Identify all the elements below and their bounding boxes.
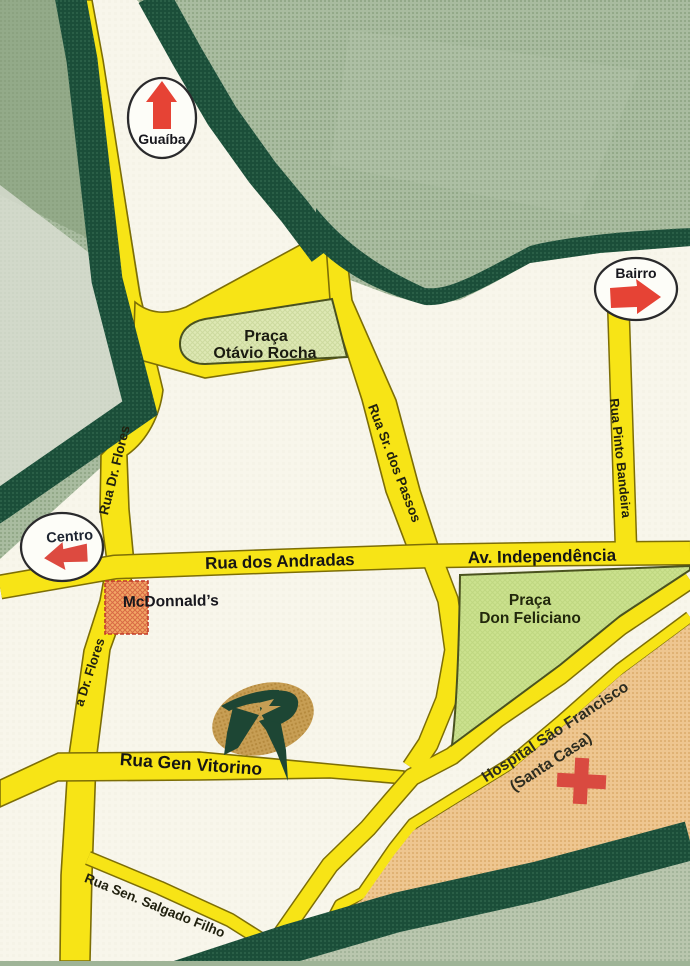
svg-text:Rua dos Andradas: Rua dos Andradas: [205, 550, 355, 573]
svg-text:Bairro: Bairro: [615, 265, 656, 281]
svg-text:Guaíba: Guaíba: [138, 131, 186, 147]
svg-text:McDonnald’s: McDonnald’s: [123, 592, 219, 611]
svg-text:Praça: Praça: [509, 592, 552, 609]
svg-text:Otávio Rocha: Otávio Rocha: [213, 345, 316, 362]
svg-text:Praça: Praça: [244, 328, 288, 345]
svg-text:Don Feliciano: Don Feliciano: [479, 610, 581, 627]
svg-text:Av. Independência: Av. Independência: [468, 546, 617, 568]
